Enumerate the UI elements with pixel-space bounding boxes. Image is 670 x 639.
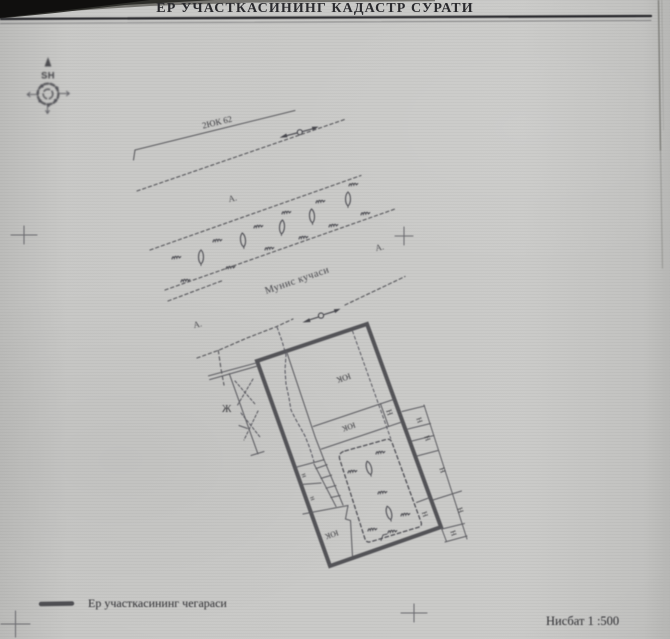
svg-text:Н: Н (420, 510, 430, 519)
svg-text:Мунис кучаси: Мунис кучаси (264, 264, 331, 296)
svg-text:Нисбат 1 :500: Нисбат 1 :500 (546, 614, 619, 628)
svg-text:Н: Н (448, 529, 458, 538)
svg-text:Н: Н (384, 408, 394, 417)
svg-text:А.: А. (192, 318, 202, 330)
svg-text:н: н (308, 495, 318, 502)
svg-text:Ер участкасининг чегараси: Ер участкасининг чегараси (88, 596, 227, 610)
svg-text:SH: SH (41, 70, 55, 81)
svg-text:А.: А. (227, 192, 237, 204)
svg-text:ЮК: ЮК (340, 420, 356, 433)
svg-text:2ЮК 62: 2ЮК 62 (201, 114, 233, 131)
svg-text:ЮК: ЮК (335, 371, 352, 385)
svg-text:Н: Н (414, 416, 424, 425)
svg-text:Ж: Ж (222, 404, 232, 415)
svg-text:ЮК: ЮК (323, 528, 339, 541)
svg-text:А.: А. (374, 241, 384, 253)
svg-text:н: н (300, 472, 310, 479)
svg-text:Н: Н (422, 434, 432, 443)
